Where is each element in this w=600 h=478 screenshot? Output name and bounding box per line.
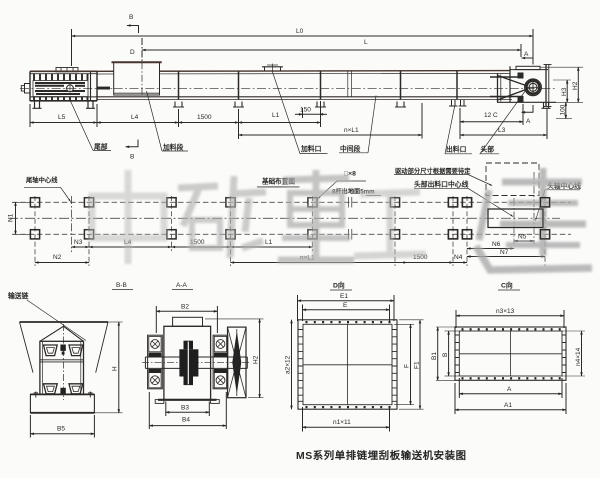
svg-text:A: A bbox=[524, 51, 529, 58]
svg-text:1500: 1500 bbox=[197, 114, 212, 121]
svg-text:B2: B2 bbox=[181, 304, 189, 311]
svg-text:B3: B3 bbox=[181, 404, 189, 411]
svg-text:L3: L3 bbox=[498, 127, 506, 134]
svg-text:中间段: 中间段 bbox=[340, 144, 361, 153]
svg-text:L1: L1 bbox=[265, 239, 273, 246]
svg-text:加料段: 加料段 bbox=[162, 142, 184, 151]
svg-text:N1: N1 bbox=[8, 213, 15, 222]
svg-text:B: B bbox=[442, 353, 449, 357]
svg-text:N5: N5 bbox=[518, 234, 527, 241]
svg-text:尾部: 尾部 bbox=[94, 142, 108, 151]
svg-text:E: E bbox=[343, 302, 348, 309]
svg-text:头部: 头部 bbox=[481, 144, 495, 153]
svg-text:MS系列单排链埋刮板输送机安装图: MS系列单排链埋刮板输送机安装图 bbox=[296, 449, 467, 462]
svg-text:n1×11: n1×11 bbox=[333, 419, 351, 426]
svg-text:D向: D向 bbox=[333, 281, 345, 290]
svg-text:n×L1: n×L1 bbox=[344, 127, 359, 134]
svg-text:H3: H3 bbox=[561, 87, 568, 96]
svg-text:B5: B5 bbox=[57, 426, 65, 433]
svg-text:B: B bbox=[129, 14, 133, 21]
svg-text:n4×14: n4×14 bbox=[575, 347, 582, 366]
svg-text:A: A bbox=[507, 386, 512, 393]
svg-text:H: H bbox=[112, 366, 119, 371]
svg-text:加料口: 加料口 bbox=[300, 144, 322, 153]
svg-text:L0: L0 bbox=[296, 28, 304, 35]
svg-text:B-B: B-B bbox=[116, 282, 127, 289]
svg-text:F1: F1 bbox=[413, 361, 420, 369]
svg-text:B4: B4 bbox=[182, 417, 190, 424]
svg-text:n3×13: n3×13 bbox=[496, 308, 515, 315]
svg-text:L1: L1 bbox=[272, 112, 280, 119]
svg-text:N2: N2 bbox=[53, 254, 62, 261]
svg-text:L: L bbox=[364, 39, 368, 46]
svg-text:12 C: 12 C bbox=[484, 112, 498, 119]
svg-text:N3: N3 bbox=[74, 239, 83, 246]
svg-text:L5: L5 bbox=[58, 114, 66, 121]
svg-text:A: A bbox=[526, 118, 531, 125]
svg-text:头部出料口中心线: 头部出料口中心线 bbox=[414, 180, 469, 189]
svg-text:C向: C向 bbox=[501, 281, 513, 290]
svg-text:E1: E1 bbox=[340, 293, 348, 300]
svg-text:B1: B1 bbox=[431, 352, 438, 360]
svg-text:150: 150 bbox=[300, 107, 311, 114]
svg-text:A-A: A-A bbox=[176, 282, 188, 289]
svg-text:a2×12: a2×12 bbox=[285, 355, 292, 374]
svg-text:出料口: 出料口 bbox=[446, 144, 467, 153]
svg-text:A1: A1 bbox=[504, 402, 512, 409]
svg-text:尾轴中心线: 尾轴中心线 bbox=[26, 175, 58, 184]
svg-text:驱动部分尺寸根据需要待定: 驱动部分尺寸根据需要待定 bbox=[395, 166, 471, 175]
svg-text:N4: N4 bbox=[454, 254, 463, 261]
svg-text:N7: N7 bbox=[500, 249, 509, 256]
svg-text:H2: H2 bbox=[572, 81, 579, 90]
svg-text:输送链: 输送链 bbox=[8, 291, 29, 300]
svg-text:F: F bbox=[404, 364, 411, 368]
svg-text:L4: L4 bbox=[131, 114, 139, 121]
svg-text:D: D bbox=[130, 49, 135, 56]
svg-text:B: B bbox=[130, 154, 134, 161]
svg-text:100: 100 bbox=[560, 104, 567, 115]
svg-text:N6: N6 bbox=[492, 241, 501, 248]
svg-text:H2: H2 bbox=[253, 355, 260, 364]
